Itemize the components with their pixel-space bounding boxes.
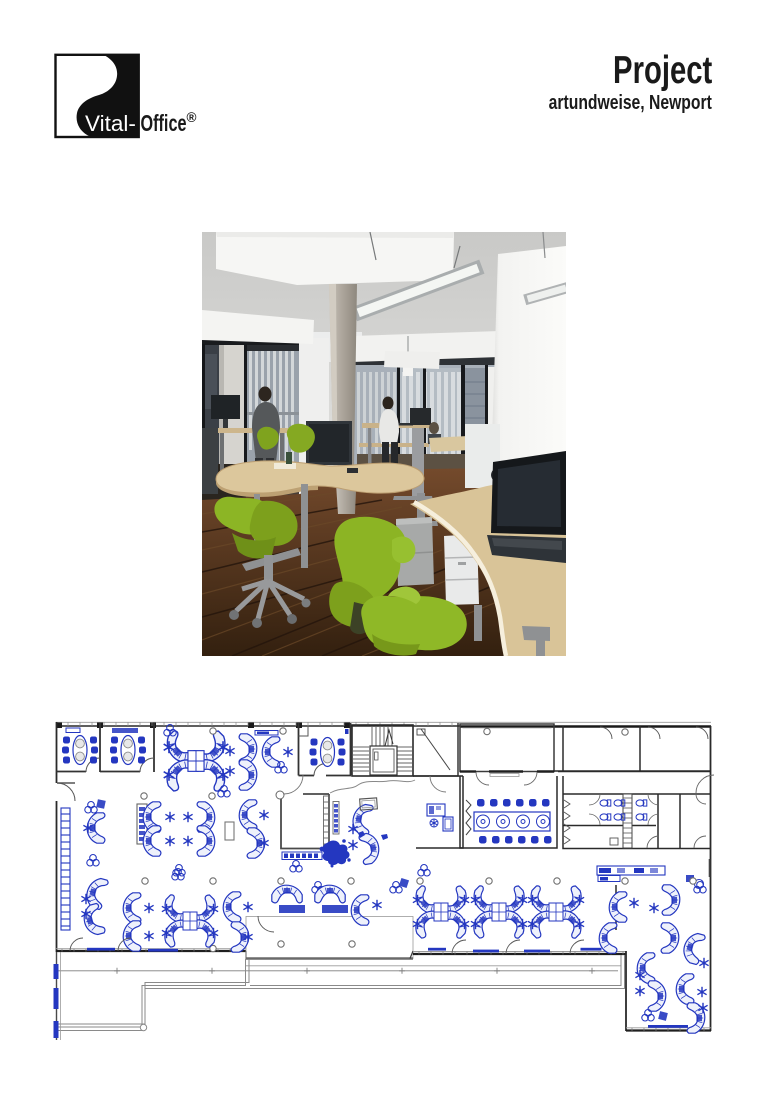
- svg-text:Vital-: Vital-: [85, 111, 136, 136]
- svg-text:®: ®: [187, 110, 197, 125]
- svg-text:Office: Office: [141, 110, 187, 136]
